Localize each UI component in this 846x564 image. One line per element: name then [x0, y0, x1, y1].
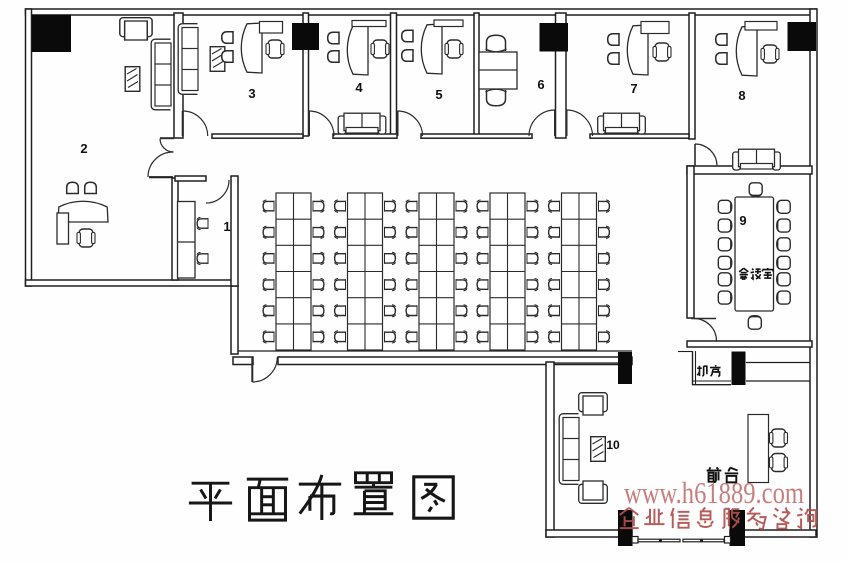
svg-text:6: 6: [537, 77, 544, 92]
svg-text:9: 9: [739, 213, 746, 228]
svg-text:7: 7: [630, 81, 637, 96]
svg-text:1: 1: [223, 219, 230, 234]
svg-text:www.h61889.com: www.h61889.com: [624, 475, 804, 510]
svg-text:3: 3: [248, 86, 255, 101]
svg-text:2: 2: [80, 141, 87, 156]
svg-text:4: 4: [355, 80, 363, 95]
svg-text:8: 8: [738, 88, 745, 103]
svg-text:5: 5: [435, 87, 442, 102]
svg-text:10: 10: [606, 438, 620, 452]
